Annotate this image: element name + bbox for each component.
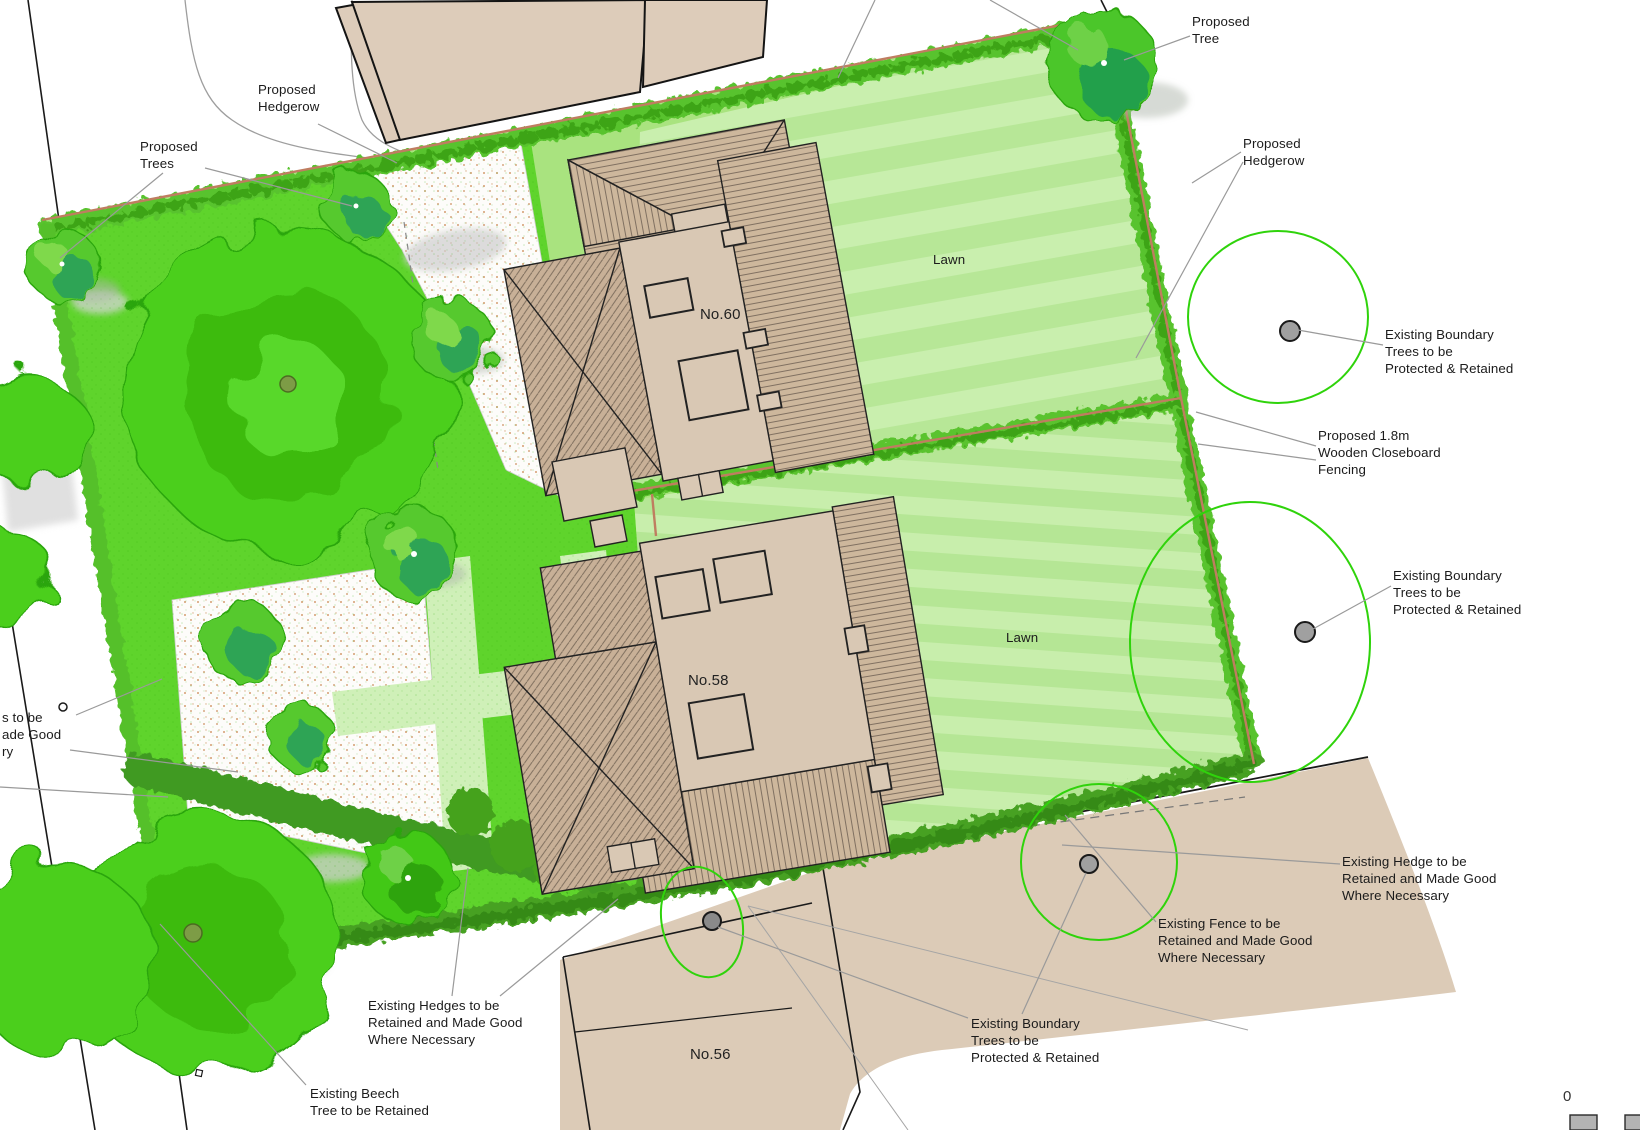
label-house-no60: No.60 (700, 306, 741, 325)
label-existing-hedge-bottom-right: Existing Hedge to be Retained and Made G… (1342, 854, 1496, 904)
building-top-right (643, 0, 767, 87)
label-existing-hedges-bottom-left: Existing Hedges to be Retained and Made … (368, 998, 522, 1048)
site-plan-drawing: Proposed Tree Proposed Hedgerow Proposed… (0, 0, 1640, 1130)
label-house-no58: No.58 (688, 672, 729, 691)
label-existing-boundary-trees-2: Existing Boundary Trees to be Protected … (1393, 568, 1521, 618)
label-lawn-60: Lawn (933, 252, 965, 269)
tree-marker-3 (1080, 855, 1098, 873)
label-lawn-58: Lawn (1006, 630, 1038, 647)
tree-trunk-dot-beech (184, 924, 202, 942)
tree-marker-1 (1280, 321, 1300, 341)
label-house-no56: No.56 (690, 1046, 731, 1065)
label-scale-zero: 0 (1563, 1088, 1571, 1107)
tree-marker-2 (1295, 622, 1315, 642)
label-proposed-hedgerow-top: Proposed Hedgerow (258, 82, 319, 116)
proposed-tree-3 (411, 299, 493, 381)
tree-trunk-dot-large (280, 376, 296, 392)
proposed-tree-6 (267, 703, 333, 769)
label-proposed-hedgerow-right: Proposed Hedgerow (1243, 136, 1304, 170)
label-left-edge-clipped: s to be ade Good ry (2, 710, 61, 760)
label-proposed-fencing: Proposed 1.8m Wooden Closeboard Fencing (1318, 428, 1441, 478)
label-existing-beech: Existing Beech Tree to be Retained (310, 1086, 429, 1120)
label-existing-boundary-trees-1: Existing Boundary Trees to be Protected … (1385, 327, 1513, 377)
protection-circle-1 (1188, 231, 1368, 403)
proposed-tree-corner-nw (28, 230, 100, 302)
proposed-tree-5 (203, 602, 283, 682)
label-existing-fence: Existing Fence to be Retained and Made G… (1158, 916, 1312, 966)
label-proposed-tree: Proposed Tree (1192, 14, 1250, 48)
label-existing-boundary-trees-3: Existing Boundary Trees to be Protected … (971, 1016, 1099, 1066)
label-proposed-trees: Proposed Trees (140, 139, 198, 173)
site-plan-canvas (0, 0, 1640, 1130)
scale-bar (1570, 1115, 1640, 1130)
